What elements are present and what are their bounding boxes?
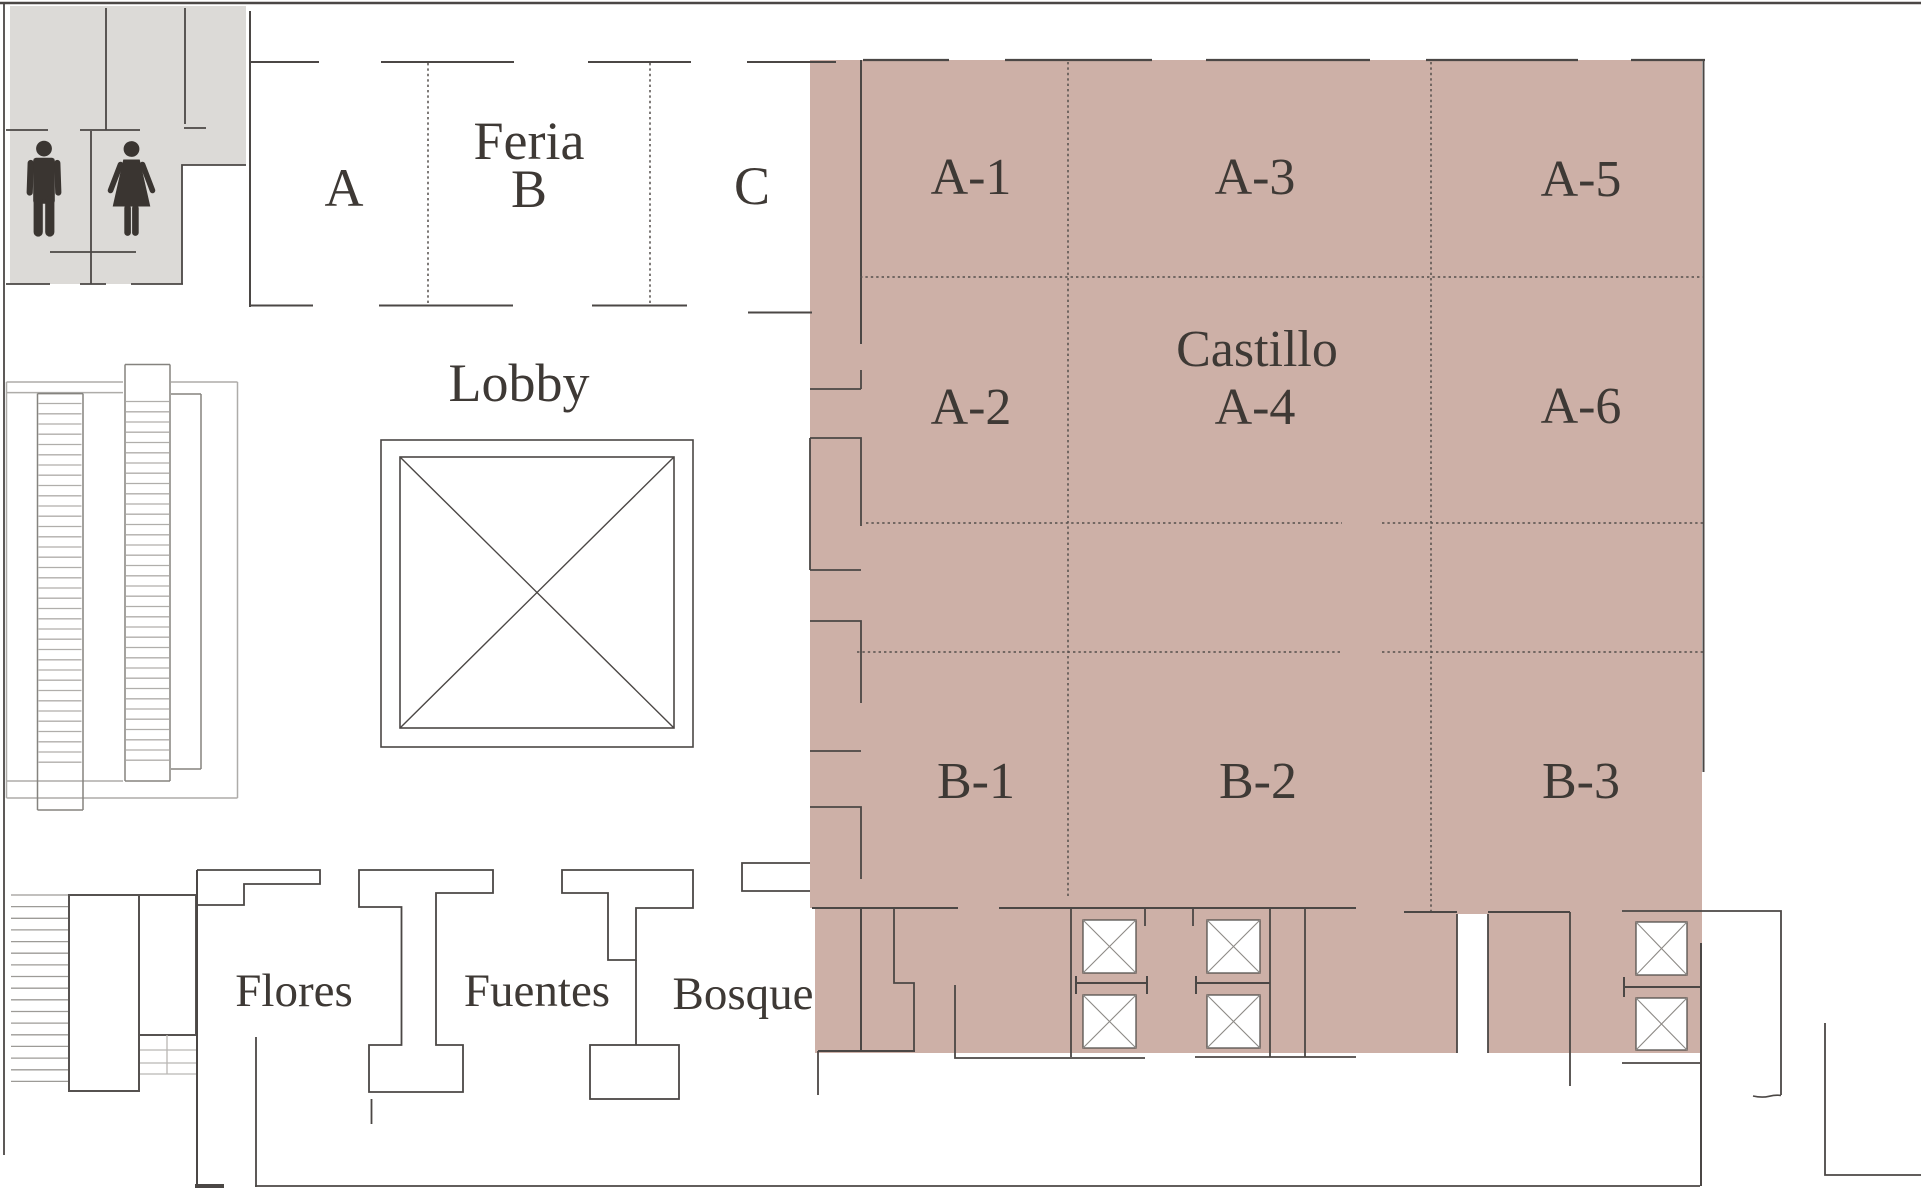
svg-text:Lobby: Lobby [449, 353, 590, 413]
svg-text:A: A [325, 158, 364, 218]
svg-text:Fuentes: Fuentes [464, 965, 610, 1017]
svg-text:A-4: A-4 [1215, 379, 1296, 436]
svg-text:Castillo: Castillo [1176, 321, 1338, 378]
svg-text:A-3: A-3 [1215, 149, 1296, 206]
svg-text:C: C [734, 156, 770, 216]
svg-text:Flores: Flores [235, 965, 353, 1017]
svg-text:A-5: A-5 [1541, 151, 1622, 208]
svg-text:A-6: A-6 [1541, 378, 1622, 435]
svg-text:A-2: A-2 [931, 379, 1012, 436]
svg-text:B-1: B-1 [937, 753, 1015, 810]
svg-text:A-1: A-1 [931, 149, 1012, 206]
svg-text:B-3: B-3 [1542, 753, 1620, 810]
svg-text:B: B [511, 159, 547, 219]
svg-text:B-2: B-2 [1219, 753, 1297, 810]
svg-text:Bosque: Bosque [673, 968, 814, 1020]
